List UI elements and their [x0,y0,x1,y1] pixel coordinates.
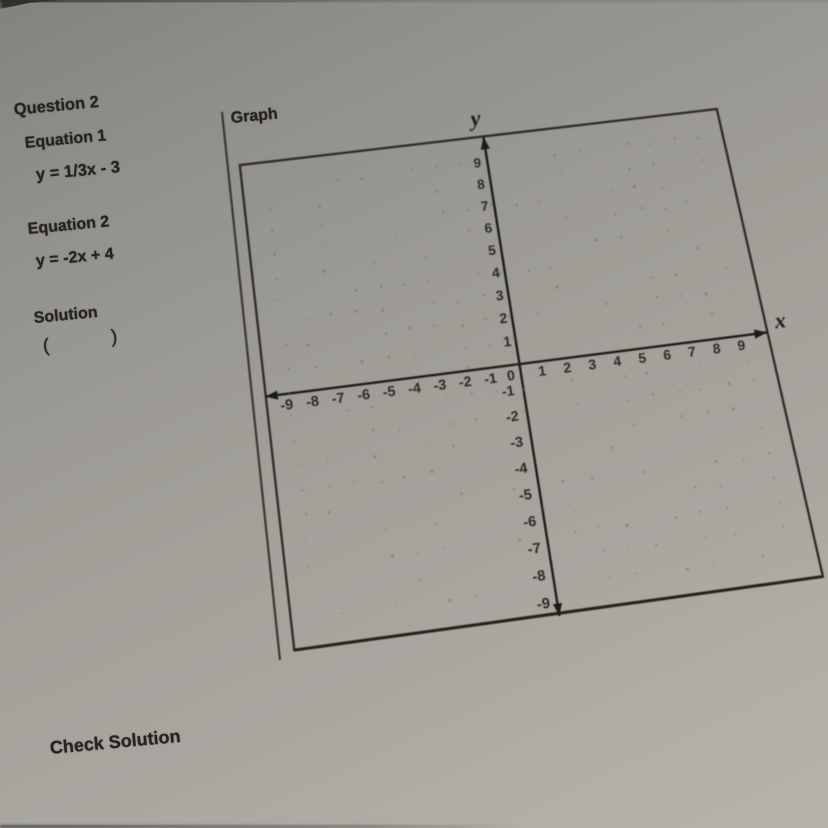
svg-text:4: 4 [491,264,501,281]
svg-text:7: 7 [687,343,697,360]
svg-text:-8: -8 [305,393,320,410]
svg-text:8: 8 [476,176,486,192]
svg-text:-7: -7 [331,390,346,407]
svg-text:9: 9 [736,337,746,354]
svg-text:y: y [466,105,482,131]
svg-text:7: 7 [480,198,489,214]
svg-text:-4: -4 [514,461,529,479]
svg-text:-3: -3 [509,434,524,452]
svg-text:9: 9 [473,155,482,171]
svg-text:-6: -6 [356,387,371,404]
svg-text:1: 1 [502,333,512,350]
svg-text:-1: -1 [501,383,516,401]
svg-text:4: 4 [612,353,622,370]
svg-text:1: 1 [537,362,547,379]
svg-text:-4: -4 [407,380,422,397]
svg-text:-2: -2 [458,374,473,391]
svg-text:-1: -1 [483,371,498,388]
svg-text:-3: -3 [433,377,448,394]
svg-text:0: 0 [506,368,516,385]
svg-text:-5: -5 [382,384,397,401]
svg-text:5: 5 [487,242,497,258]
svg-text:-2: -2 [505,409,520,427]
svg-text:6: 6 [484,220,494,236]
svg-text:3: 3 [495,287,505,304]
svg-text:3: 3 [587,356,597,373]
svg-text:-9: -9 [279,397,294,415]
svg-text:2: 2 [562,359,572,376]
svg-text:-6: -6 [522,514,537,532]
svg-text:x: x [772,307,787,333]
svg-text:2: 2 [499,310,509,327]
svg-text:-9: -9 [536,596,551,614]
svg-text:-7: -7 [527,541,542,559]
svg-text:-5: -5 [518,487,533,505]
svg-text:5: 5 [637,349,647,366]
svg-text:-8: -8 [531,568,546,586]
svg-text:6: 6 [662,346,672,363]
